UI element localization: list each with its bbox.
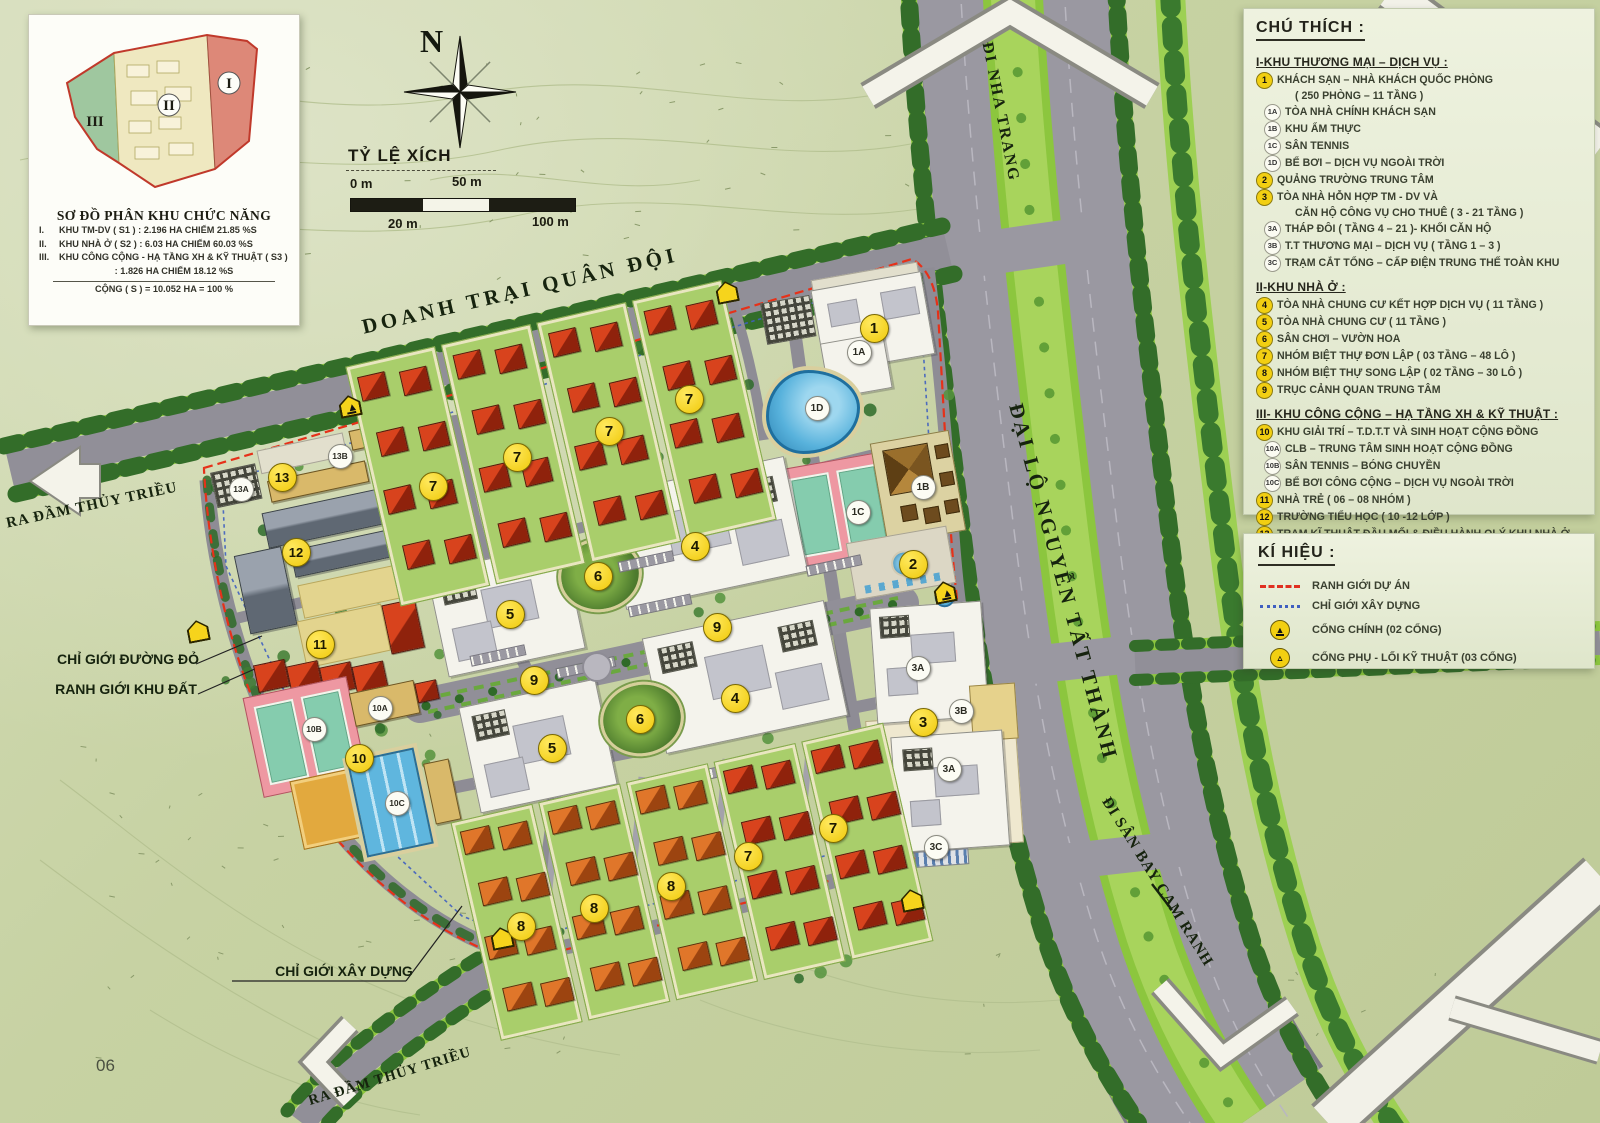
map-label-ra-dam-duoi: RA ĐẦM THỦY TRIỀU [307,1044,474,1110]
map-label-ra-dam-trai: RA ĐẦM THỦY TRIỀU [5,480,179,533]
map-marker-10b: 10B [302,717,327,742]
legend-item: 3BT.T THƯƠNG MẠI – DỊCH VỤ ( TẦNG 1 – 3 … [1264,238,1582,255]
map-marker-3: 3 [909,708,938,737]
map-marker-1: 1 [860,314,889,343]
legend-item-text: TRỤC CẢNH QUAN TRUNG TÂM [1277,383,1441,398]
legend-item-badge: 2 [1256,172,1273,189]
legend-item: 1BKHU ẨM THỰC [1264,121,1582,138]
legend-item-text: BỂ BƠI – DỊCH VỤ NGOÀI TRỜI [1285,156,1444,171]
inset-row: I.KHU TM-DV ( S1 ) : 2.196 HA CHIẾM 21.8… [29,224,299,238]
legend-item: ( 250 PHÒNG – 11 TẦNG ) [1276,89,1582,104]
map-label-chi-gioi-xay-dung: CHỈ GIỚI XÂY DỰNG [275,963,413,979]
symbol-rows: RANH GIỚI DỰ ÁNCHỈ GIỚI XÂY DỰNG▲CỔNG CH… [1258,580,1580,668]
zoning-inset-panel: I II III SƠ ĐỒ PHÂN KHU CHỨC NĂNG I.KHU … [28,14,300,326]
scale-bar-segments [350,198,576,212]
map-marker-3c: 3C [924,835,949,860]
legend-item: 10BSÂN TENNIS – BÓNG CHUYỀN [1264,458,1582,475]
inset-row: II.KHU NHÀ Ở ( S2 ) : 6.03 HA CHIẾM 60.0… [29,238,299,252]
legend-item: 10CBỂ BƠI CÔNG CỘNG – DỊCH VỤ NGOÀI TRỜI [1264,475,1582,492]
legend-item: 1ATÒA NHÀ CHÍNH KHÁCH SẠN [1264,104,1582,121]
symbol-item: ▲CỔNG CHÍNH (02 CỔNG) [1258,620,1580,640]
legend-item-badge: 6 [1256,331,1273,348]
symbol-item-text: CỔNG PHỤ - LỐI KỸ THUẬT (03 CỔNG) [1312,652,1517,664]
legend-item-badge: 1 [1256,72,1273,89]
legend-item-badge: 11 [1256,492,1273,509]
map-marker-6: 6 [626,705,655,734]
legend-item-text: CĂN HỘ CÔNG VỤ CHO THUÊ ( 3 - 21 TẦNG ) [1295,206,1523,221]
gate-sub-icon: ▲▲ [1270,648,1290,668]
legend-item-text: TÒA NHÀ HỖN HỢP TM - DV VÀ [1277,190,1438,205]
legend-item-text: TRẠM CẮT TỔNG – CẤP ĐIỆN TRUNG THẾ TOÀN … [1285,256,1559,271]
map-marker-7: 7 [419,472,448,501]
map-marker-9: 9 [520,666,549,695]
legend-item: 3ATHÁP ĐÔI ( TẦNG 4 – 21 )- KHỐI CĂN HỘ [1264,221,1582,238]
legend-item: 6SÂN CHƠI – VƯỜN HOA [1256,331,1582,348]
legend-item: 12TRƯỜNG TIỂU HỌC ( 10 -12 LỚP ) [1256,509,1582,526]
legend-item-text: TÒA NHÀ CHUNG CƯ ( 11 TẦNG ) [1277,315,1446,330]
map-marker-1b: 1B [911,475,936,500]
legend-item-badge: 8 [1256,365,1273,382]
symbol-red-dash-icon [1258,585,1302,588]
inset-total: CỘNG ( S ) = 10.052 HA = 100 % [53,281,274,294]
legend-item-badge: 3 [1256,189,1273,206]
legend-item: 1DBỂ BƠI – DỊCH VỤ NGOÀI TRỜI [1264,155,1582,172]
map-label-dai-lo: ĐẠI LỘ NGUYỄN TẤT THÀNH [1003,401,1123,764]
legend-item: 9TRỤC CẢNH QUAN TRUNG TÂM [1256,382,1582,399]
symbols-title: KÍ HIỆU : [1258,544,1335,566]
zoning-minimap: I II III [29,15,299,201]
map-label-chi-gioi-duong-do: CHỈ GIỚI ĐƯỜNG ĐỎ [57,651,199,667]
symbols-panel: KÍ HIỆU : RANH GIỚI DỰ ÁNCHỈ GIỚI XÂY DỰ… [1243,533,1595,669]
legend-item-text: CLB – TRUNG TÂM SINH HOẠT CỘNG ĐỒNG [1285,442,1513,457]
legend-item: 7NHÓM BIỆT THỰ ĐƠN LẬP ( 03 TẦNG – 48 LÔ… [1256,348,1582,365]
symbol-gate-main-icon: ▲ [1258,620,1302,640]
legend-item: CĂN HỘ CÔNG VỤ CHO THUÊ ( 3 - 21 TẦNG ) [1276,206,1582,221]
map-marker-13b: 13B [328,444,353,469]
legend-sections: I-KHU THƯƠNG MẠI – DỊCH VỤ :1KHÁCH SẠN –… [1256,55,1582,577]
symbol-item: RANH GIỚI DỰ ÁN [1258,580,1580,592]
symbol-item-text: CỔNG CHÍNH (02 CỔNG) [1312,624,1442,636]
map-label-ranh-gioi-khu-dat: RANH GIỚI KHU ĐẤT [55,681,197,697]
legend-item-badge: 10 [1256,424,1273,441]
map-label-di-nha-trang: ĐI NHA TRANG [978,41,1023,184]
map-marker-9: 9 [703,613,732,642]
map-marker-1a: 1A [847,340,872,365]
legend-item-text: TÒA NHÀ CHÍNH KHÁCH SẠN [1285,105,1436,120]
scale-bar-title: TỶ LỆ XÍCH [348,146,452,166]
legend-item-text: SÂN TENNIS [1285,139,1349,154]
symbol-item: CHỈ GIỚI XÂY DỰNG [1258,600,1580,612]
legend-item: 2QUẢNG TRƯỜNG TRUNG TÂM [1256,172,1582,189]
legend-title: CHÚ THÍCH : [1256,19,1365,41]
map-marker-8: 8 [580,894,609,923]
map-marker-7: 7 [734,842,763,871]
legend-item-text: BỂ BƠI CÔNG CỘNG – DỊCH VỤ NGOÀI TRỜI [1285,476,1514,491]
inset-zone-i-label: I [226,76,232,92]
legend-item-badge [1276,206,1291,221]
legend-item: 3CTRẠM CẮT TỔNG – CẤP ĐIỆN TRUNG THẾ TOÀ… [1264,255,1582,272]
inset-row: III.KHU CÔNG CỘNG - HẠ TẦNG XH & KỸ THUẬ… [29,251,299,265]
symbol-item: ▲▲CỔNG PHỤ - LỐI KỸ THUẬT (03 CỔNG) [1258,648,1580,668]
legend-item-text: KHÁCH SẠN – NHÀ KHÁCH QUỐC PHÒNG [1277,73,1493,88]
legend-item-badge: 1A [1264,104,1281,121]
scale-tick-20: 20 m [388,216,418,231]
map-marker-4: 4 [721,684,750,713]
map-marker-8: 8 [507,912,536,941]
map-marker-3b: 3B [949,699,974,724]
legend-item: 1CSÂN TENNIS [1264,138,1582,155]
legend-item: 3TÒA NHÀ HỖN HỢP TM - DV VÀ [1256,189,1582,206]
map-marker-3a: 3A [906,656,931,681]
legend-item-text: SÂN CHƠI – VƯỜN HOA [1277,332,1400,347]
legend-item-badge: 10C [1264,475,1281,492]
legend-item-text: NHÓM BIỆT THỰ SONG LẬP ( 02 TẦNG – 30 LÔ… [1277,366,1522,381]
legend-item-badge: 4 [1256,297,1273,314]
legend-item-text: THÁP ĐÔI ( TẦNG 4 – 21 )- KHỐI CĂN HỘ [1285,222,1491,237]
legend-item: 11NHÀ TRẺ ( 06 – 08 NHÓM ) [1256,492,1582,509]
symbol-item-text: CHỈ GIỚI XÂY DỰNG [1312,600,1420,612]
map-marker-1d: 1D [805,396,830,421]
legend-item: 4TÒA NHÀ CHUNG CƯ KẾT HỢP DỊCH VỤ ( 11 T… [1256,297,1582,314]
map-marker-4: 4 [681,532,710,561]
map-marker-11: 11 [306,630,335,659]
legend-section-heading: II-KHU NHÀ Ở : [1256,280,1582,294]
map-marker-6: 6 [584,562,613,591]
legend-item-badge: 10B [1264,458,1281,475]
scale-bar: TỶ LỆ XÍCH 0 m 50 m 20 m 100 m [336,146,616,238]
gate-main-icon: ▲ [1270,620,1290,640]
legend-item-text: TRƯỜNG TIỂU HỌC ( 10 -12 LỚP ) [1277,510,1450,525]
inset-row: : 1.826 HA CHIẾM 18.12 %S [29,265,299,279]
symbol-gate-sub-icon: ▲▲ [1258,648,1302,668]
legend-item-badge: 7 [1256,348,1273,365]
page-number: 06 [96,1056,115,1076]
map-label-doanh-trai: DOANH TRẠI QUÂN ĐỘI [360,242,681,339]
legend-item-badge: 12 [1256,509,1273,526]
map-marker-7: 7 [819,814,848,843]
map-marker-7: 7 [675,385,704,414]
map-marker-10c: 10C [385,791,410,816]
legend-item-badge: 3C [1264,255,1281,272]
legend-item-text: SÂN TENNIS – BÓNG CHUYỀN [1285,459,1440,474]
inset-title: SƠ ĐỒ PHÂN KHU CHỨC NĂNG [29,208,299,224]
legend-item-text: TÒA NHÀ CHUNG CƯ KẾT HỢP DỊCH VỤ ( 11 TẦ… [1277,298,1543,313]
map-marker-5: 5 [538,734,567,763]
map-marker-1c: 1C [846,500,871,525]
inset-zone-ii-label: II [163,98,175,114]
legend-item: 10ACLB – TRUNG TÂM SINH HOẠT CỘNG ĐỒNG [1264,441,1582,458]
legend-item-text: NHÀ TRẺ ( 06 – 08 NHÓM ) [1277,493,1411,508]
master-plan-sheet: ▲▲▲▲▲▲▲▲▲▲ 12344556677777788899101112131… [0,0,1600,1123]
legend-item: 5TÒA NHÀ CHUNG CƯ ( 11 TẦNG ) [1256,314,1582,331]
map-marker-5: 5 [496,600,525,629]
legend-item-badge: 3B [1264,238,1281,255]
map-marker-10: 10 [345,744,374,773]
map-marker-13: 13 [268,463,297,492]
legend-item-text: T.T THƯƠNG MẠI – DỊCH VỤ ( TẦNG 1 – 3 ) [1285,239,1501,254]
map-label-di-san-bay: ĐI SÂN BAY CAM RANH [1097,794,1216,970]
legend-item-badge [1276,89,1291,104]
map-marker-10a: 10A [368,696,393,721]
legend-item-text: ( 250 PHÒNG – 11 TẦNG ) [1295,89,1423,104]
legend-item-badge: 1C [1264,138,1281,155]
map-marker-13a: 13A [229,477,254,502]
legend-item-text: KHU GIẢI TRÍ – T.D.T.T VÀ SINH HOẠT CỘNG… [1277,425,1538,440]
scale-tick-100: 100 m [532,214,569,229]
legend-item-badge: 3A [1264,221,1281,238]
legend-panel: CHÚ THÍCH : I-KHU THƯƠNG MẠI – DỊCH VỤ :… [1243,8,1595,515]
legend-item-badge: 1B [1264,121,1281,138]
legend-item-badge: 9 [1256,382,1273,399]
map-marker-7: 7 [595,417,624,446]
symbol-blue-dash-icon [1258,605,1302,608]
scale-tick-50: 50 m [452,174,482,189]
map-marker-8: 8 [657,872,686,901]
legend-section-heading: I-KHU THƯƠNG MẠI – DỊCH VỤ : [1256,55,1582,69]
north-compass: N [398,20,523,160]
legend-item-text: QUẢNG TRƯỜNG TRUNG TÂM [1277,173,1434,188]
inset-rows: I.KHU TM-DV ( S1 ) : 2.196 HA CHIẾM 21.8… [29,224,299,278]
legend-item-badge: 5 [1256,314,1273,331]
legend-item: 8NHÓM BIỆT THỰ SONG LẬP ( 02 TẦNG – 30 L… [1256,365,1582,382]
legend-item-badge: 1D [1264,155,1281,172]
legend-item-text: KHU ẨM THỰC [1285,122,1361,137]
compass-n-label: N [420,23,443,59]
legend-item-badge: 10A [1264,441,1281,458]
inset-zone-iii-label: III [86,114,104,130]
scale-tick-0: 0 m [350,176,372,191]
legend-item: 10KHU GIẢI TRÍ – T.D.T.T VÀ SINH HOẠT CỘ… [1256,424,1582,441]
map-marker-12: 12 [282,538,311,567]
map-marker-2: 2 [899,550,928,579]
map-marker-7: 7 [503,443,532,472]
legend-section-heading: III- KHU CÔNG CỘNG – HẠ TẦNG XH & KỸ THU… [1256,407,1582,421]
symbol-item-text: RANH GIỚI DỰ ÁN [1312,580,1410,592]
map-marker-3a: 3A [937,757,962,782]
legend-item-text: NHÓM BIỆT THỰ ĐƠN LẬP ( 03 TẦNG – 48 LÔ … [1277,349,1515,364]
legend-item: 1KHÁCH SẠN – NHÀ KHÁCH QUỐC PHÒNG [1256,72,1582,89]
